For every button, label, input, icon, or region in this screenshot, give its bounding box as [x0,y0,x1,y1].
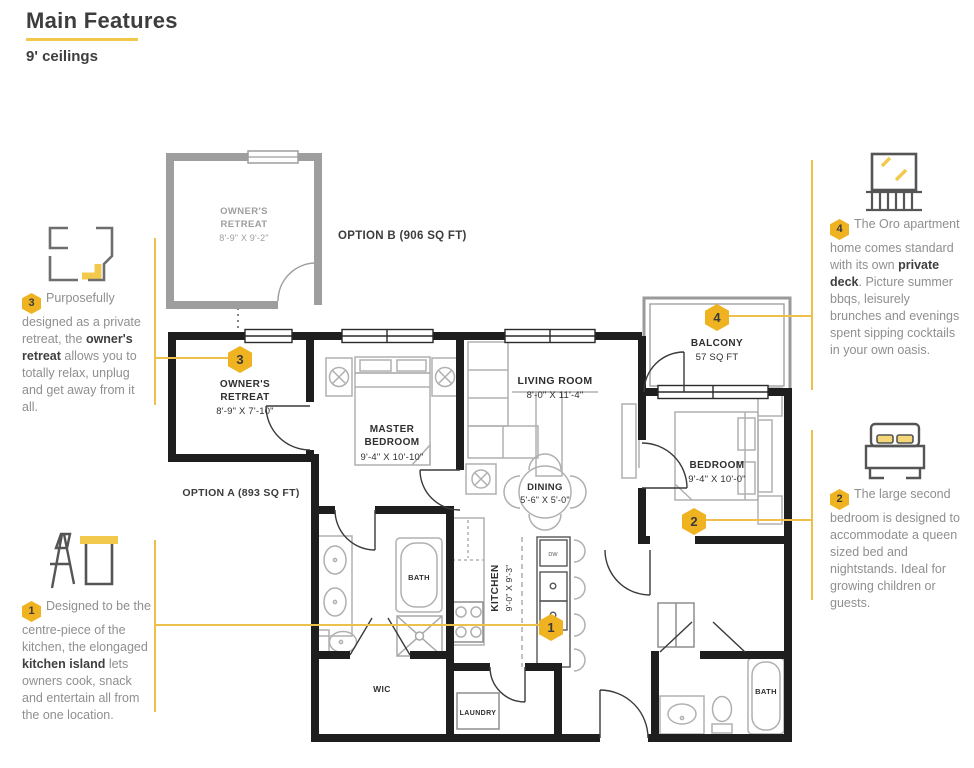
balcony-name: BALCONY [691,338,743,349]
bedroom-name: BEDROOM [689,460,744,471]
page-title: Main Features [26,8,178,34]
dishwasher-label: DW [548,552,558,558]
shower-icon [397,616,442,656]
page-subtitle: 9' ceilings [26,48,178,65]
door-arcs [266,352,745,738]
master-bedroom-dims: 9'-4" X 10'-10" [360,452,423,463]
retreat-plan-icon [42,222,126,286]
annotation-1-text: Designed to be the centre-piece of the k… [22,599,151,654]
owners-retreat-name-2: RETREAT [220,392,269,403]
annotation-3-badge: 3 [22,293,41,314]
header: Main Features 9' ceilings [26,8,178,65]
balcony-icon [856,150,932,214]
annotation-4-number: 4 [836,222,842,237]
master-bed-icon [326,357,458,465]
toilet-icon [317,630,357,654]
master-bath-label: BATH [408,573,430,582]
plan-badge-4-number: 4 [713,310,720,325]
tv-console-icon [622,404,639,478]
kitchen-dims: 9'-0" X 9'-3" [504,565,514,612]
annotation-1-bold: kitchen island [22,657,105,671]
living-room-name: LIVING ROOM [518,375,593,387]
annotation-1-number: 1 [28,604,34,619]
console-table-icon [512,392,598,476]
annotation-1-badge: 1 [22,601,41,622]
wic-label: WIC [373,684,391,694]
kitchen-island-icon [34,530,122,592]
owners-retreat-name-1: OWNER'S [220,379,270,390]
option-a-label: OPTION A (893 SQ FT) [182,487,299,499]
callout-line-1-v [154,540,156,712]
optionb-room-dims: 8'-9" X 9'-2" [219,233,268,243]
callout-line-3-v [154,238,156,405]
annotation-4: 4The Oro apartment home comes standard w… [830,216,964,359]
annotation-2-text: The large second bedroom is designed to … [830,487,960,610]
callout-line-4-h [729,315,811,317]
living-room-dims: 8'-0" X 11'-4" [527,390,584,401]
dining-name: DINING [527,482,563,493]
bar-stool-icons [574,540,585,671]
master-bedroom-name-1: MASTER [370,424,415,435]
optionb-room-name-1: OWNER'S [220,206,268,217]
annotation-3: 3Purposefully designed as a private retr… [22,290,150,416]
floor-plan: OWNER'S RETREAT 8'-9" X 9'-2" OPTION B (… [160,140,810,768]
main-features-page: Main Features 9' ceilings [0,0,974,768]
owners-retreat-dims: 8'-9" X 7'-10" [216,406,274,417]
title-underline [26,38,138,41]
callout-line-3-h [156,357,230,359]
annotation-2: 2The large second bedroom is designed to… [830,486,964,612]
annotation-2-number: 2 [836,492,842,507]
second-bath-label: BATH [755,687,777,696]
annotation-2-badge: 2 [830,489,849,510]
balcony-dims: 57 SQ FT [696,352,739,363]
vanity-icon [318,536,352,636]
kitchen-name: KITCHEN [490,564,501,611]
callout-line-4-v [811,160,813,390]
bed-icon [858,420,932,482]
annotation-4-text: The Oro apartment home comes standard wi… [830,217,960,272]
plan-badge-3-number: 3 [236,352,243,367]
master-bedroom-name-2: BEDROOM [364,437,419,448]
callout-line-2-h [706,519,811,521]
bedroom-dims: 9'-4" X 10'-0" [688,474,746,485]
laundry-label: LAUNDRY [460,710,497,717]
annotation-4-badge: 4 [830,219,849,240]
option-b-label: OPTION B (906 SQ FT) [338,230,467,242]
bedroom-bed-icon [675,388,782,524]
plan-badge-2-number: 2 [690,514,697,529]
bath2-fixtures [660,658,784,734]
sofa-icon [466,342,538,494]
callout-line-2-v [811,430,813,600]
annotation-3-number: 3 [28,296,34,311]
annotation-1: 1Designed to be the centre-piece of the … [22,598,152,724]
optionb-room-name-2: RETREAT [221,219,268,230]
dining-dims: 5'-6" X 5'-0" [520,495,569,505]
callout-line-1-h [156,624,540,626]
plan-badge-1-number: 1 [547,620,554,635]
